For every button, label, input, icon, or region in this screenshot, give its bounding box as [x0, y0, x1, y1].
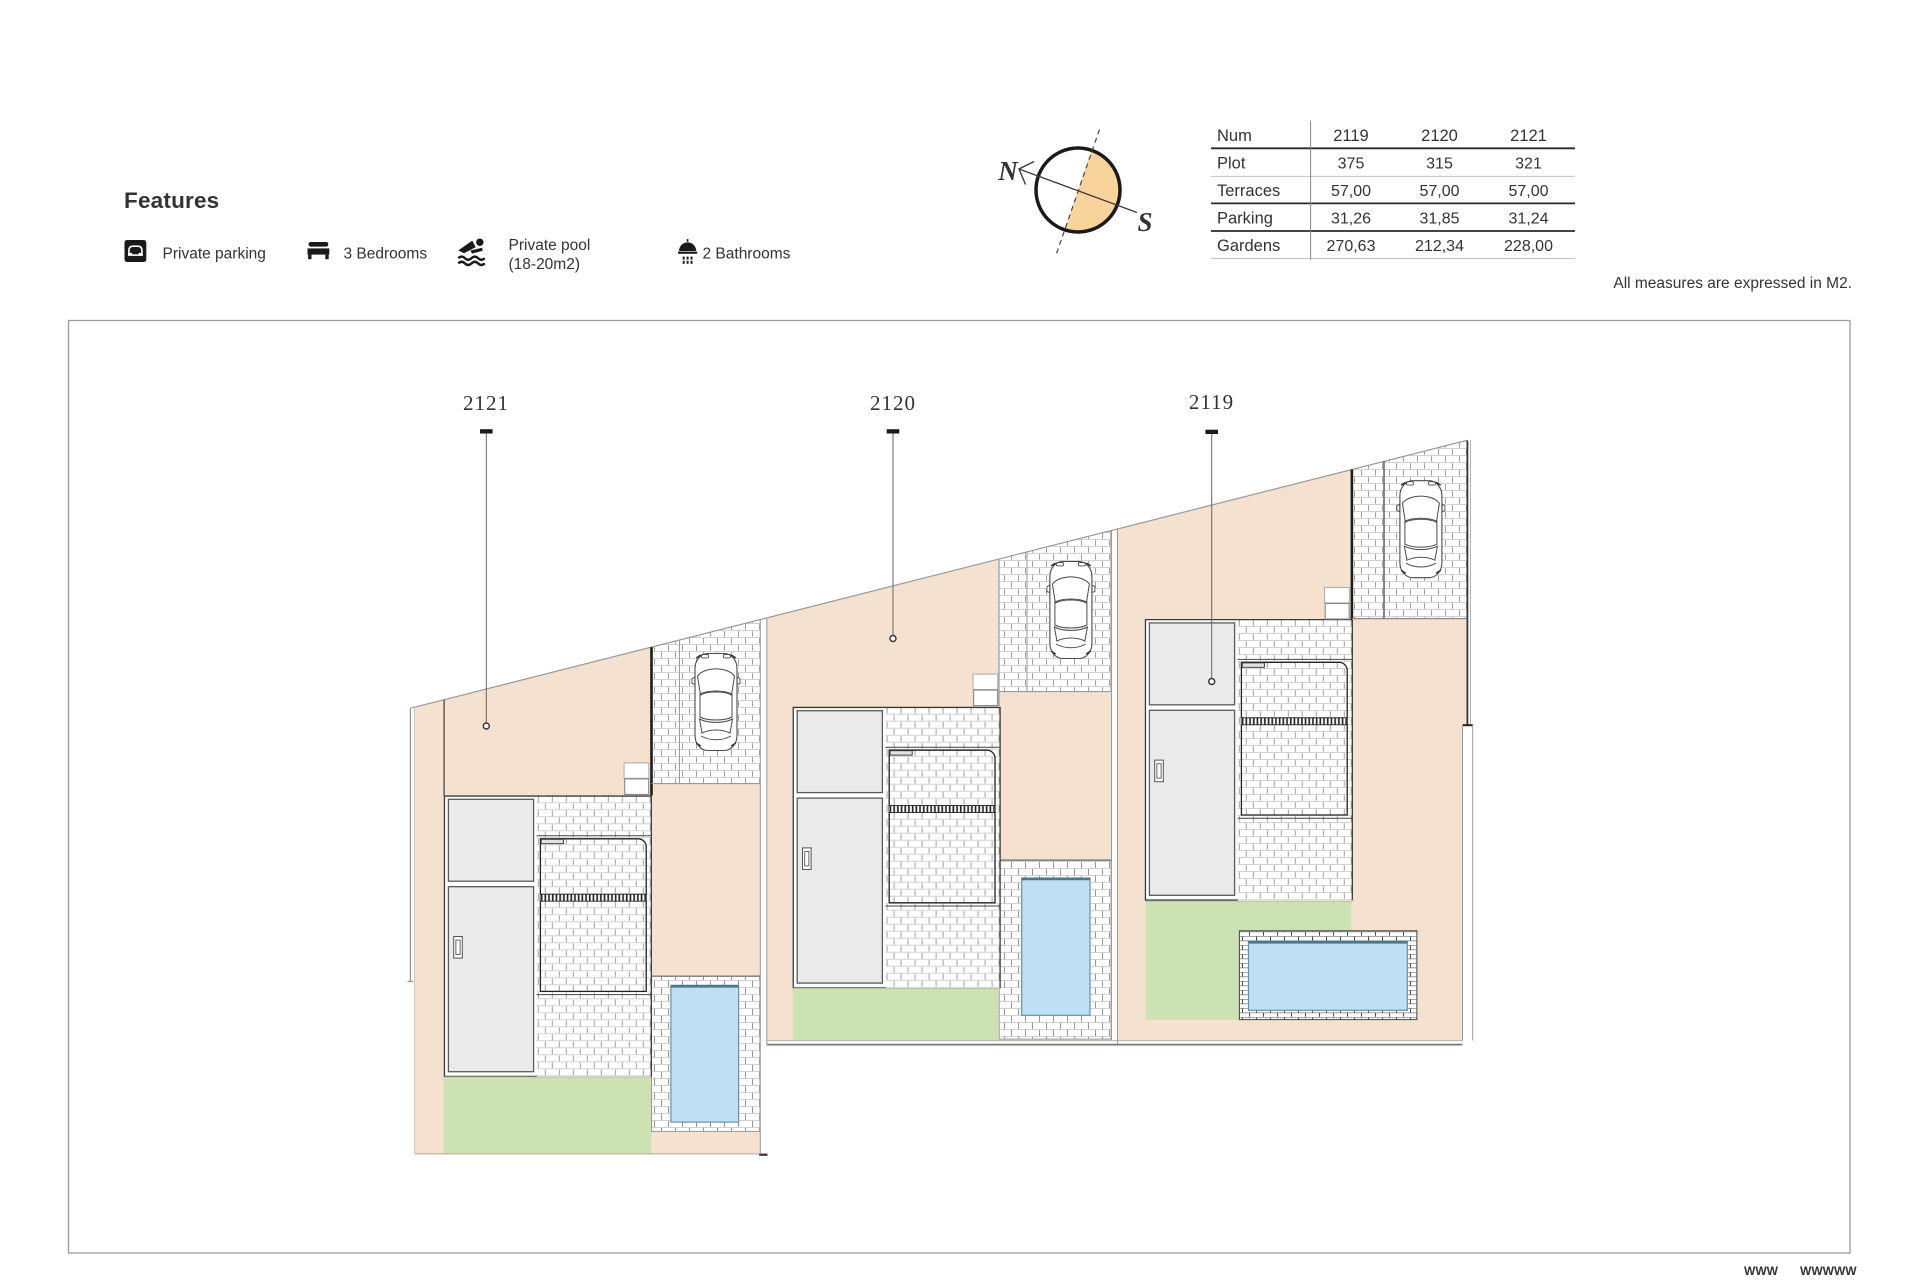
svg-text:2119: 2119: [1333, 127, 1368, 145]
svg-text:2119: 2119: [1189, 390, 1234, 414]
svg-text:270,63: 270,63: [1327, 238, 1376, 255]
svg-text:321: 321: [1515, 156, 1542, 173]
svg-text:N: N: [997, 156, 1019, 186]
svg-text:375: 375: [1338, 156, 1365, 173]
svg-text:Features: Features: [124, 188, 219, 213]
svg-text:2 Bathrooms: 2 Bathrooms: [703, 246, 791, 263]
svg-text:Gardens: Gardens: [1217, 237, 1280, 255]
svg-text:Plot: Plot: [1217, 155, 1246, 173]
svg-text:228,00: 228,00: [1504, 238, 1553, 255]
svg-text:Terraces: Terraces: [1217, 182, 1280, 200]
svg-text:All measures are expressed in: All measures are expressed in M2.: [1613, 275, 1852, 292]
svg-text:Private pool: Private pool: [509, 237, 591, 254]
svg-text:57,00: 57,00: [1419, 183, 1459, 200]
svg-text:2121: 2121: [463, 391, 509, 415]
svg-text:31,26: 31,26: [1331, 211, 1371, 228]
svg-text:31,24: 31,24: [1508, 211, 1548, 228]
svg-text:2121: 2121: [1510, 127, 1547, 145]
svg-text:Private parking: Private parking: [163, 246, 266, 263]
svg-text:S: S: [1137, 207, 1152, 237]
svg-text:(18-20m2): (18-20m2): [509, 256, 581, 273]
svg-text:57,00: 57,00: [1331, 183, 1371, 200]
svg-text:WWWWW: WWWWW: [1800, 1264, 1857, 1278]
svg-text:Num: Num: [1217, 127, 1252, 145]
svg-text:Parking: Parking: [1217, 210, 1273, 228]
svg-text:3 Bedrooms: 3 Bedrooms: [344, 246, 428, 263]
svg-text:212,34: 212,34: [1415, 238, 1464, 255]
svg-text:2120: 2120: [1421, 127, 1458, 145]
svg-text:2120: 2120: [870, 391, 916, 415]
svg-text:WWW: WWW: [1744, 1264, 1779, 1278]
svg-text:31,85: 31,85: [1419, 211, 1459, 228]
svg-text:315: 315: [1426, 156, 1453, 173]
svg-text:57,00: 57,00: [1508, 183, 1548, 200]
